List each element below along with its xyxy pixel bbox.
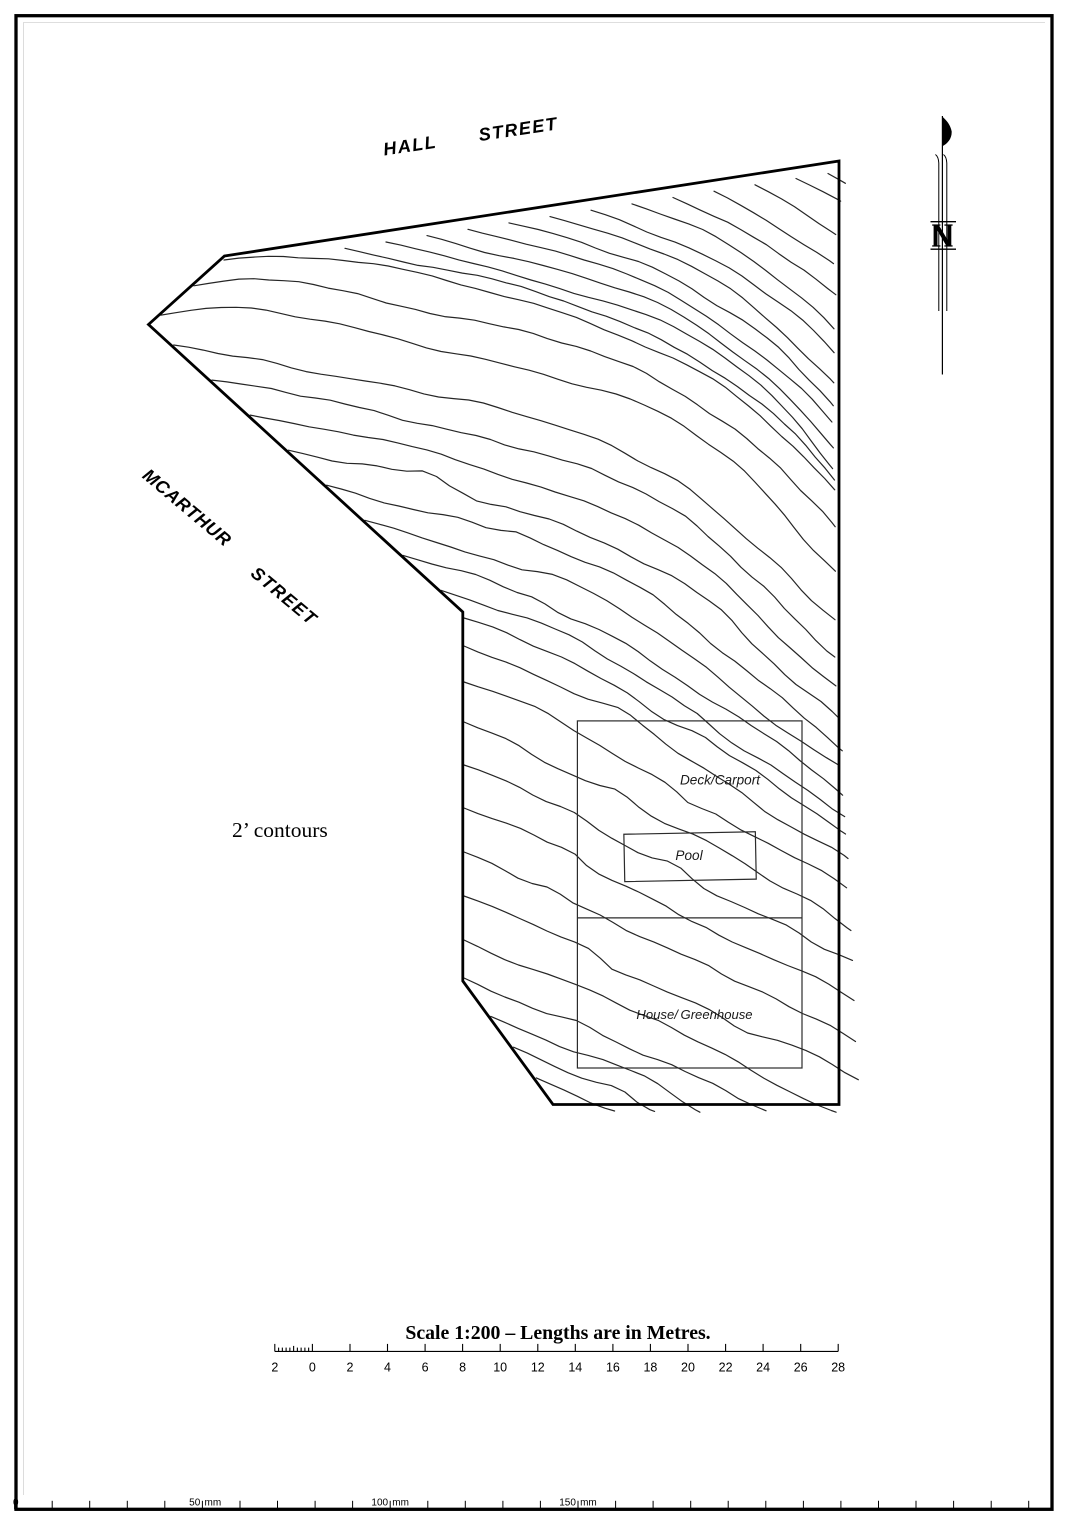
svg-text:Deck/Carport: Deck/Carport bbox=[680, 773, 761, 788]
svg-text:mm: mm bbox=[392, 1498, 409, 1509]
svg-text:16: 16 bbox=[606, 1361, 620, 1375]
svg-text:mm: mm bbox=[580, 1498, 597, 1509]
svg-text:10: 10 bbox=[493, 1361, 507, 1375]
svg-text:14: 14 bbox=[568, 1361, 582, 1375]
svg-text:100: 100 bbox=[371, 1498, 388, 1509]
svg-text:mm: mm bbox=[205, 1498, 222, 1509]
svg-text:18: 18 bbox=[643, 1361, 657, 1375]
svg-text:Pool: Pool bbox=[675, 848, 703, 863]
svg-text:150: 150 bbox=[559, 1498, 576, 1509]
svg-text:12: 12 bbox=[531, 1361, 545, 1375]
svg-text:8: 8 bbox=[459, 1361, 466, 1375]
svg-text:6: 6 bbox=[422, 1361, 429, 1375]
svg-text:2: 2 bbox=[271, 1361, 278, 1375]
svg-text:24: 24 bbox=[756, 1361, 770, 1375]
svg-text:50: 50 bbox=[189, 1498, 201, 1509]
svg-text:Scale 1:200 – Lengths are in M: Scale 1:200 – Lengths are in Metres. bbox=[405, 1322, 710, 1344]
svg-text:0: 0 bbox=[309, 1361, 316, 1375]
svg-text:2: 2 bbox=[347, 1361, 354, 1375]
svg-text:2’ contours: 2’ contours bbox=[232, 818, 328, 842]
svg-text:House/ Greenhouse: House/ Greenhouse bbox=[636, 1007, 752, 1022]
svg-text:22: 22 bbox=[719, 1361, 733, 1375]
svg-text:26: 26 bbox=[794, 1361, 808, 1375]
svg-text:20: 20 bbox=[681, 1361, 695, 1375]
svg-text:28: 28 bbox=[831, 1361, 845, 1375]
svg-text:0: 0 bbox=[13, 1498, 19, 1509]
svg-text:4: 4 bbox=[384, 1361, 391, 1375]
